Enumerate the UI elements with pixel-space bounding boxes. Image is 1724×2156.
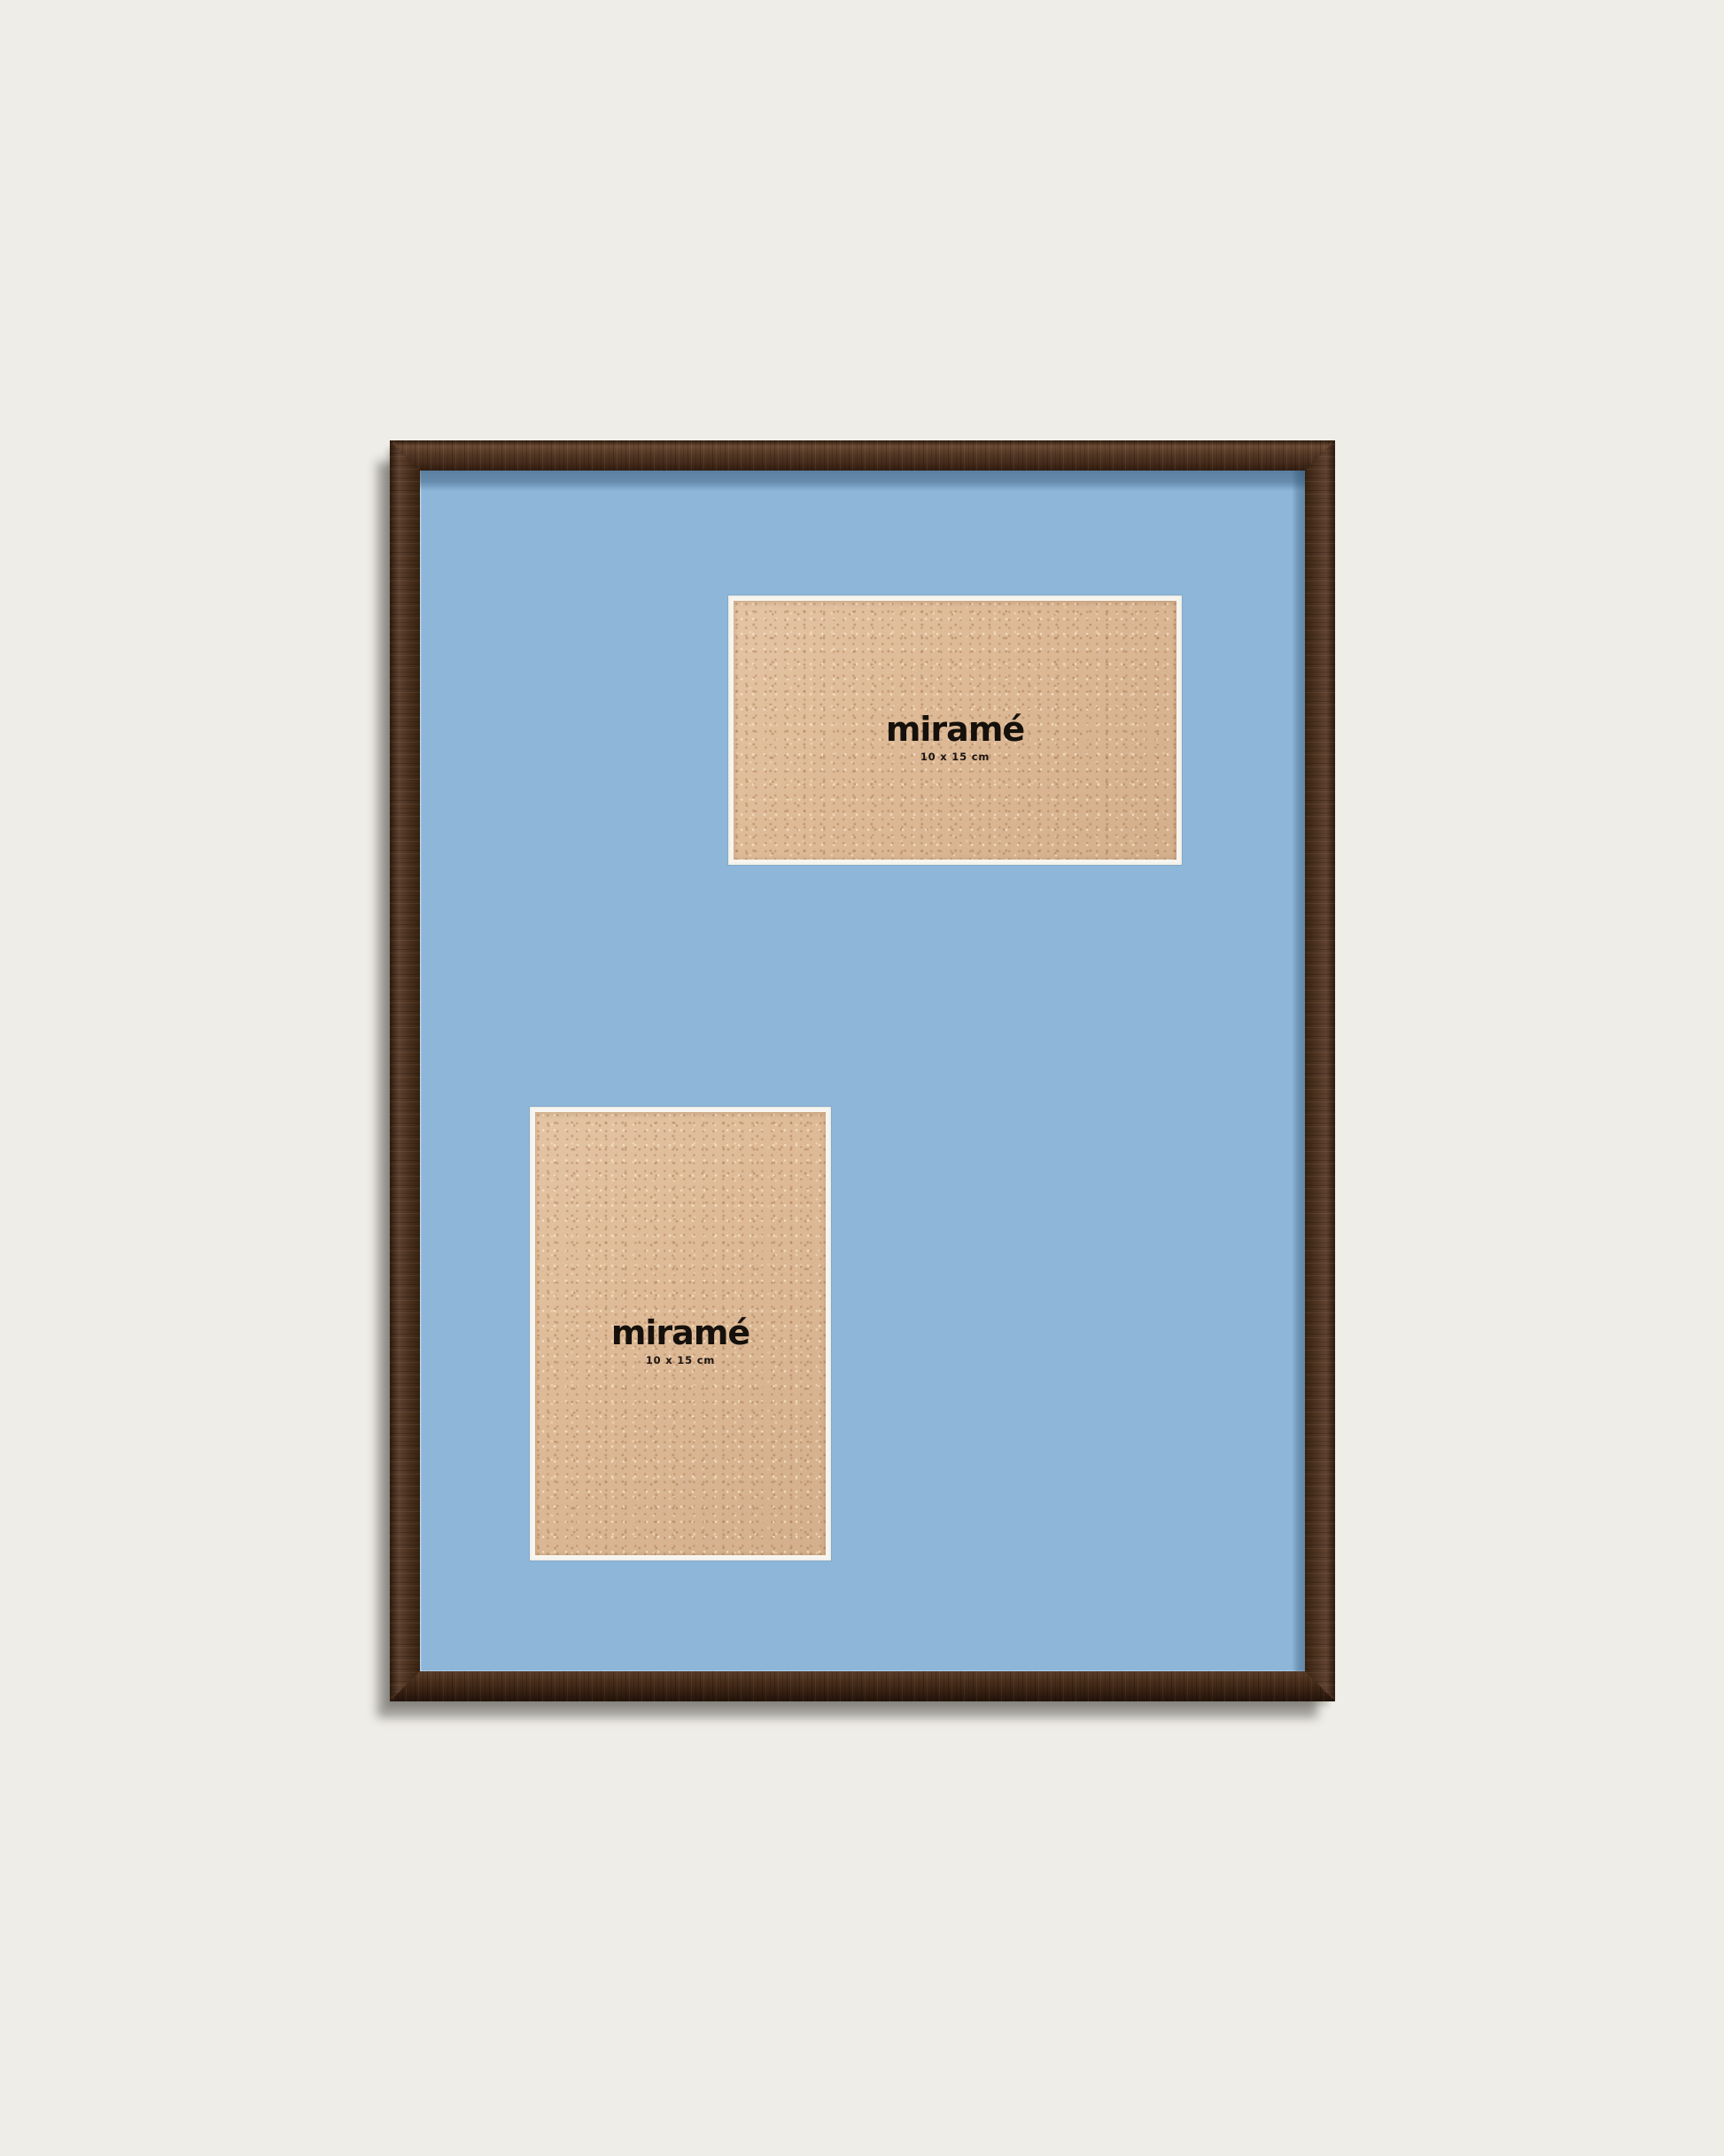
brand-logo-text: miramé [886,712,1024,746]
brand-logo-text: miramé [611,1316,749,1350]
picture-frame: miramé 10 x 15 cm miramé 10 x 15 cm [390,440,1335,1701]
mat-inner-shadow-top [420,471,1305,491]
brand-block: miramé 10 x 15 cm [611,1316,749,1366]
backing-board-landscape: miramé 10 x 15 cm [734,601,1177,860]
frame-rail-bottom [390,1671,1335,1701]
mat-opening-landscape: miramé 10 x 15 cm [728,595,1182,865]
backing-board-portrait: miramé 10 x 15 cm [535,1112,826,1555]
frame-rail-left [390,440,420,1701]
mat-board: miramé 10 x 15 cm miramé 10 x 15 cm [420,471,1305,1671]
brand-block: miramé 10 x 15 cm [886,712,1024,763]
size-label: 10 x 15 cm [886,752,1024,763]
frame-rail-top [390,440,1335,471]
size-label: 10 x 15 cm [611,1356,749,1366]
mat-inner-shadow-right [1292,471,1305,1671]
product-photo-background: miramé 10 x 15 cm miramé 10 x 15 cm [0,0,1724,2156]
frame-rail-right [1305,440,1335,1701]
mat-opening-portrait: miramé 10 x 15 cm [530,1107,831,1561]
